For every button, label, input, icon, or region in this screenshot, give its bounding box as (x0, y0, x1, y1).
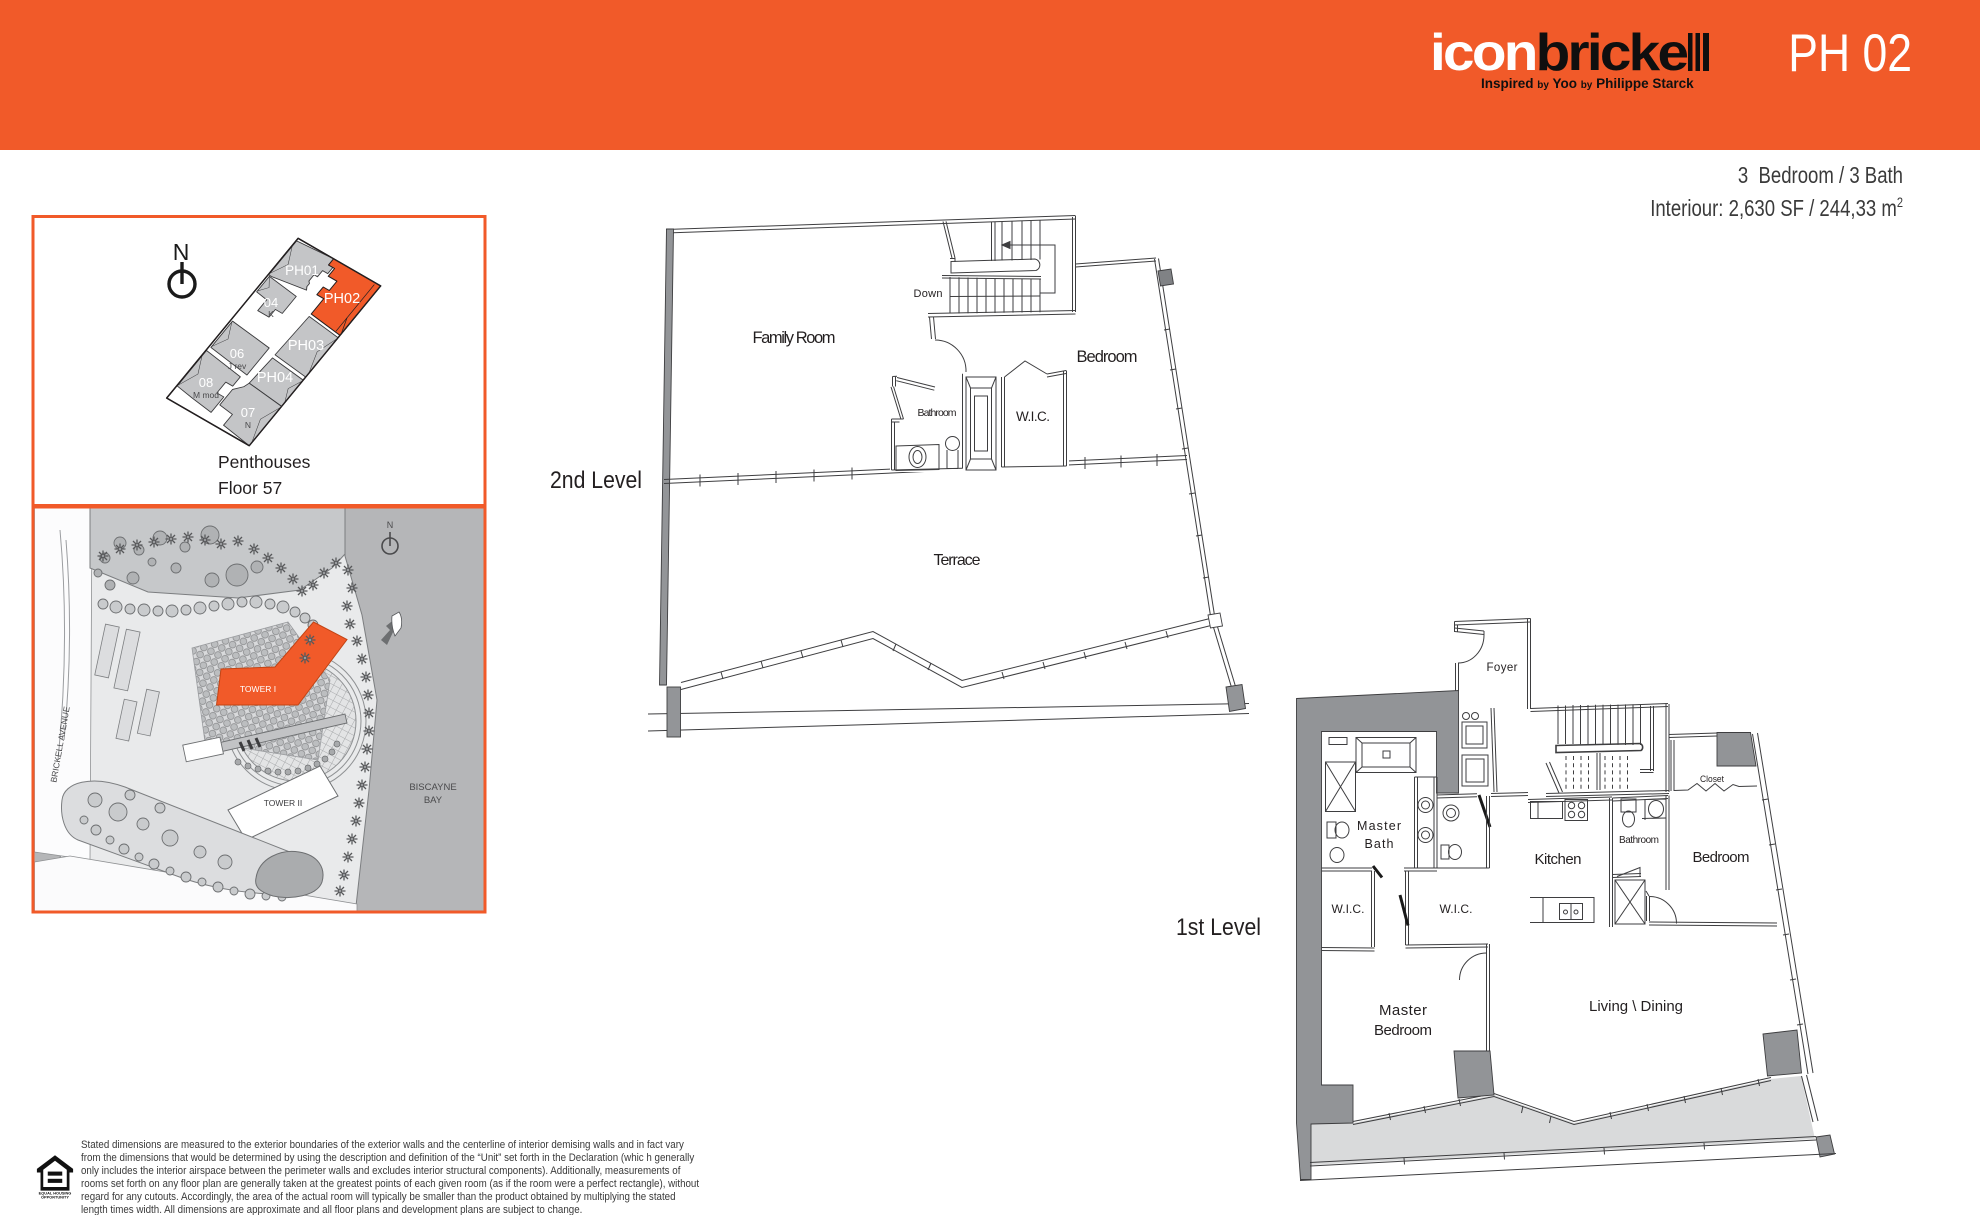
svg-text:2nd Level: 2nd Level (550, 467, 642, 494)
svg-text:BISCAYNE: BISCAYNE (409, 782, 456, 793)
svg-text:J rev: J rev (228, 361, 247, 371)
svg-text:Closet: Closet (1700, 774, 1724, 785)
svg-text:Terrace: Terrace (934, 552, 981, 569)
svg-text:1st Level: 1st Level (1176, 914, 1261, 941)
svg-text:Foyer: Foyer (1487, 662, 1518, 674)
svg-text:Living \ Dining: Living \ Dining (1589, 998, 1683, 1015)
svg-text:PH02: PH02 (324, 291, 360, 307)
svg-text:N: N (173, 239, 190, 265)
svg-text:N: N (387, 520, 394, 530)
svg-text:08: 08 (199, 375, 213, 390)
svg-text:PH01: PH01 (285, 263, 319, 278)
svg-text:06: 06 (230, 346, 244, 361)
svg-text:Bedroom: Bedroom (1693, 849, 1750, 866)
svg-text:W.I.C.: W.I.C. (1332, 902, 1365, 916)
svg-text:Down: Down (914, 288, 943, 300)
svg-text:N: N (245, 420, 251, 430)
svg-text:Bathroom: Bathroom (1619, 835, 1659, 846)
svg-text:04: 04 (264, 295, 278, 310)
svg-text:Bedroom: Bedroom (1374, 1022, 1432, 1039)
svg-text:Bath: Bath (1365, 837, 1394, 851)
svg-text:Master: Master (1379, 1002, 1427, 1019)
svg-text:K: K (268, 309, 274, 319)
svg-text:W.I.C.: W.I.C. (1016, 409, 1050, 424)
svg-text:M mod: M mod (193, 390, 219, 400)
svg-text:Bedroom: Bedroom (1077, 348, 1138, 366)
svg-text:Floor 57: Floor 57 (218, 478, 282, 498)
svg-text:PH04: PH04 (257, 370, 293, 386)
svg-text:Bathroom: Bathroom (918, 407, 957, 419)
svg-text:07: 07 (241, 405, 255, 420)
svg-text:BAY: BAY (424, 795, 443, 806)
svg-text:OPPORTUNITY: OPPORTUNITY (41, 1195, 69, 1200)
svg-text:Penthouses: Penthouses (218, 452, 311, 472)
svg-text:PH03: PH03 (288, 338, 324, 354)
svg-text:TOWER II: TOWER II (264, 798, 303, 808)
svg-text:Master: Master (1357, 819, 1401, 833)
svg-text:Kitchen: Kitchen (1535, 851, 1582, 868)
svg-text:Family Room: Family Room (753, 329, 836, 347)
svg-text:W.I.C.: W.I.C. (1440, 902, 1473, 916)
svg-text:TOWER I: TOWER I (240, 684, 276, 694)
